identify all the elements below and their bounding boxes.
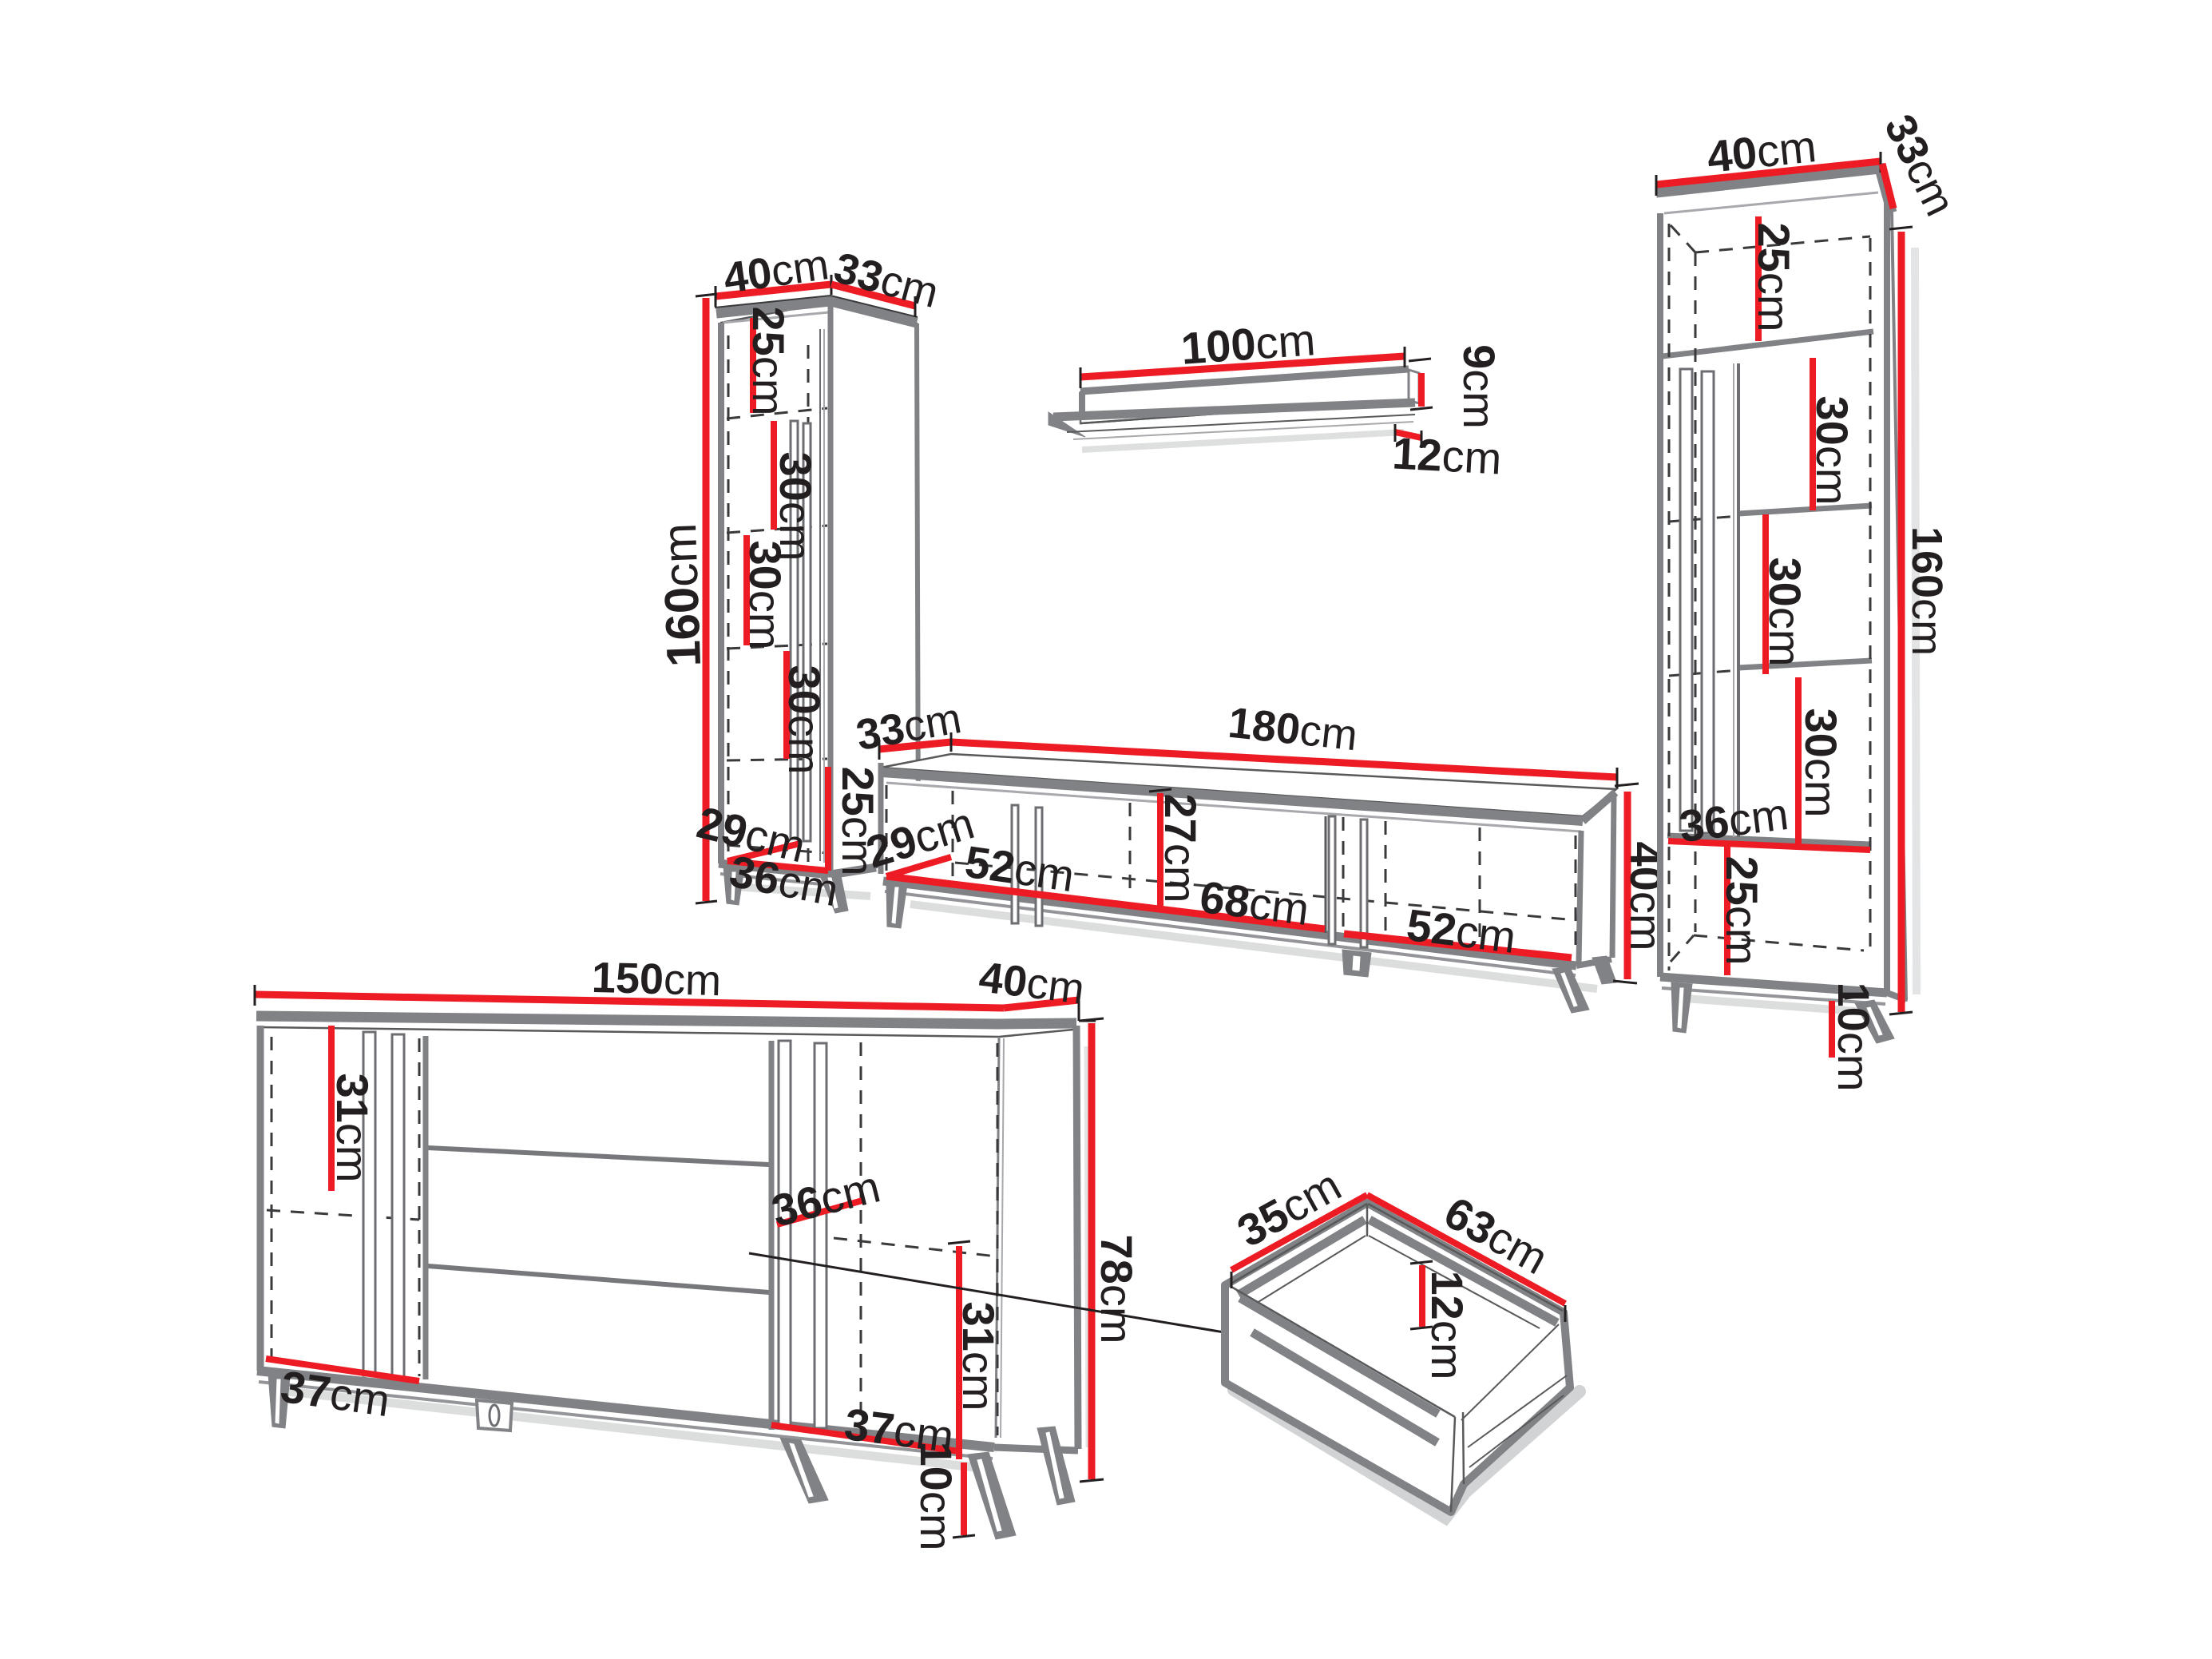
svg-text:30cm: 30cm [1797,708,1847,818]
svg-text:27cm: 27cm [1156,794,1207,903]
svg-text:150cm: 150cm [591,954,722,1005]
svg-text:100cm: 100cm [1179,314,1317,374]
svg-text:25cm: 25cm [1750,223,1800,332]
svg-text:12cm: 12cm [1391,427,1503,483]
svg-text:160cm: 160cm [652,522,710,668]
svg-text:10cm: 10cm [912,1442,962,1551]
svg-text:25cm: 25cm [1718,856,1768,966]
svg-text:25cm: 25cm [744,307,795,416]
svg-text:31cm: 31cm [328,1074,379,1183]
svg-text:78cm: 78cm [1092,1235,1143,1344]
svg-text:10cm: 10cm [1829,982,1880,1092]
svg-text:30cm: 30cm [741,541,791,650]
svg-text:30cm: 30cm [1808,396,1858,506]
svg-text:31cm: 31cm [954,1302,1005,1411]
svg-text:30cm: 30cm [1761,558,1811,667]
svg-text:9cm: 9cm [1455,344,1505,429]
svg-text:160cm: 160cm [1903,526,1951,656]
svg-text:30cm: 30cm [780,665,830,775]
svg-text:12cm: 12cm [1423,1271,1473,1380]
